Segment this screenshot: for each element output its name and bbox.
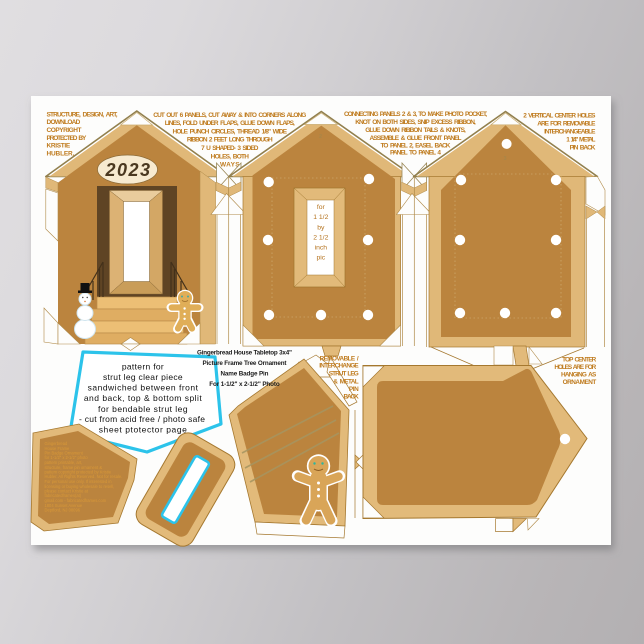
- svg-text:Name Badge Pin: Name Badge Pin: [221, 371, 269, 378]
- svg-text:Picture Frame Tree Ornament: Picture Frame Tree Ornament: [203, 360, 288, 367]
- svg-text:KRISTIE: KRISTIE: [47, 143, 71, 150]
- svg-text:TOP CENTER: TOP CENTER: [562, 356, 597, 363]
- svg-text:HUBLER.: HUBLER.: [47, 151, 75, 158]
- svg-text:BACK: BACK: [344, 394, 360, 401]
- svg-text:PIN: PIN: [349, 386, 359, 393]
- svg-text:2 1/2: 2 1/2: [313, 234, 328, 241]
- svg-text:2 VERTICAL CENTER HOLES: 2 VERTICAL CENTER HOLES: [523, 112, 596, 119]
- svg-text:TO PANEL 2, EASEL BACK: TO PANEL 2, EASEL BACK: [381, 143, 451, 150]
- svg-text:INTERCHANGE: INTERCHANGE: [319, 362, 359, 369]
- svg-text:For 1-1/2" x 2-1/2" Photo: For 1-1/2" x 2-1/2" Photo: [209, 381, 280, 388]
- svg-text:STRUCTURE, DESIGN, ART,: STRUCTURE, DESIGN, ART,: [47, 111, 118, 118]
- svg-text:Deptford, NJ 08096: Deptford, NJ 08096: [45, 508, 81, 513]
- svg-text:COPYRIGHT: COPYRIGHT: [47, 127, 82, 134]
- svg-text:for: for: [317, 204, 326, 211]
- svg-text:pattern for: pattern for: [122, 361, 164, 371]
- svg-text:KNOT ON BOTH SIDES, SNIP EXCES: KNOT ON BOTH SIDES, SNIP EXCESS RIBBON,: [355, 119, 476, 126]
- svg-text:PIN BACK: PIN BACK: [570, 145, 596, 152]
- svg-text:ORNAMENT: ORNAMENT: [563, 379, 597, 386]
- svg-text:2: 2: [319, 134, 322, 140]
- svg-text:2023: 2023: [104, 160, 151, 180]
- svg-text:- cut from acid free / photo s: - cut from acid free / photo safe: [79, 414, 205, 424]
- svg-text:HANGING AS: HANGING AS: [561, 372, 597, 379]
- svg-text:LINES, FOLD UNDER FLAPS, GLUE: LINES, FOLD UNDER FLAPS, GLUE DOWN FLAPS…: [165, 120, 295, 127]
- svg-text:& METAL: & METAL: [333, 379, 359, 386]
- svg-text:STRUT LEG: STRUT LEG: [329, 371, 359, 378]
- svg-text:Gingerbread House Tabletop 3x4: Gingerbread House Tabletop 3x4": [197, 350, 292, 357]
- svg-text:HOLES, BOTH: HOLES, BOTH: [211, 153, 250, 160]
- svg-text:CONNECTING PANELS 2 & 3, TO MA: CONNECTING PANELS 2 & 3, TO MAKE PHOTO P…: [344, 111, 487, 118]
- svg-text:DOWNLOAD: DOWNLOAD: [47, 119, 81, 126]
- svg-text:sheet ptotector page: sheet ptotector page: [99, 424, 187, 434]
- svg-text:INTERCHANGEABLE: INTERCHANGEABLE: [544, 129, 596, 136]
- svg-text:GLUE DOWN RIBBON TAILS & KNOTS: GLUE DOWN RIBBON TAILS & KNOTS,: [365, 127, 466, 134]
- svg-text:RIBBON 2 FEET LONG THROUGH: RIBBON 2 FEET LONG THROUGH: [187, 137, 273, 144]
- svg-text:pic: pic: [316, 255, 325, 262]
- svg-text:PANEL TO PANEL 4: PANEL TO PANEL 4: [390, 150, 441, 157]
- svg-text:inch: inch: [315, 245, 328, 252]
- svg-text:1 1/4" METAL: 1 1/4" METAL: [566, 137, 595, 144]
- svg-text:ARE FOR REMOVABLE: ARE FOR REMOVABLE: [537, 121, 596, 128]
- svg-text:3: 3: [503, 156, 506, 162]
- svg-text:by: by: [317, 224, 325, 231]
- svg-text:sandwiched between front: sandwiched between front: [88, 383, 199, 393]
- svg-text:strut leg clear piece: strut leg clear piece: [103, 372, 183, 382]
- svg-text:HOLE PUNCH CIRCLES, THREAD 1/8: HOLE PUNCH CIRCLES, THREAD 1/8" WIDE: [173, 128, 288, 135]
- svg-text:1 1/2: 1 1/2: [313, 214, 328, 221]
- svg-text:ASSEMBLE & GLUE FRONT PANEL: ASSEMBLE & GLUE FRONT PANEL: [370, 135, 462, 142]
- svg-text:and back, top & bottom split: and back, top & bottom split: [84, 393, 203, 403]
- svg-text:CUT OUT 6 PANELS, CUT AWAY & I: CUT OUT 6 PANELS, CUT AWAY & INTO CORNER…: [153, 112, 306, 119]
- svg-text:HOLES ARE FOR: HOLES ARE FOR: [554, 364, 596, 371]
- svg-text:PROTECTED BY: PROTECTED BY: [47, 135, 87, 142]
- svg-text:7 U SHAPED- 3 SIDED: 7 U SHAPED- 3 SIDED: [201, 145, 259, 152]
- svg-text:REMOVABLE /: REMOVABLE /: [320, 355, 359, 362]
- svg-text:for bendable strut leg: for bendable strut leg: [98, 404, 188, 414]
